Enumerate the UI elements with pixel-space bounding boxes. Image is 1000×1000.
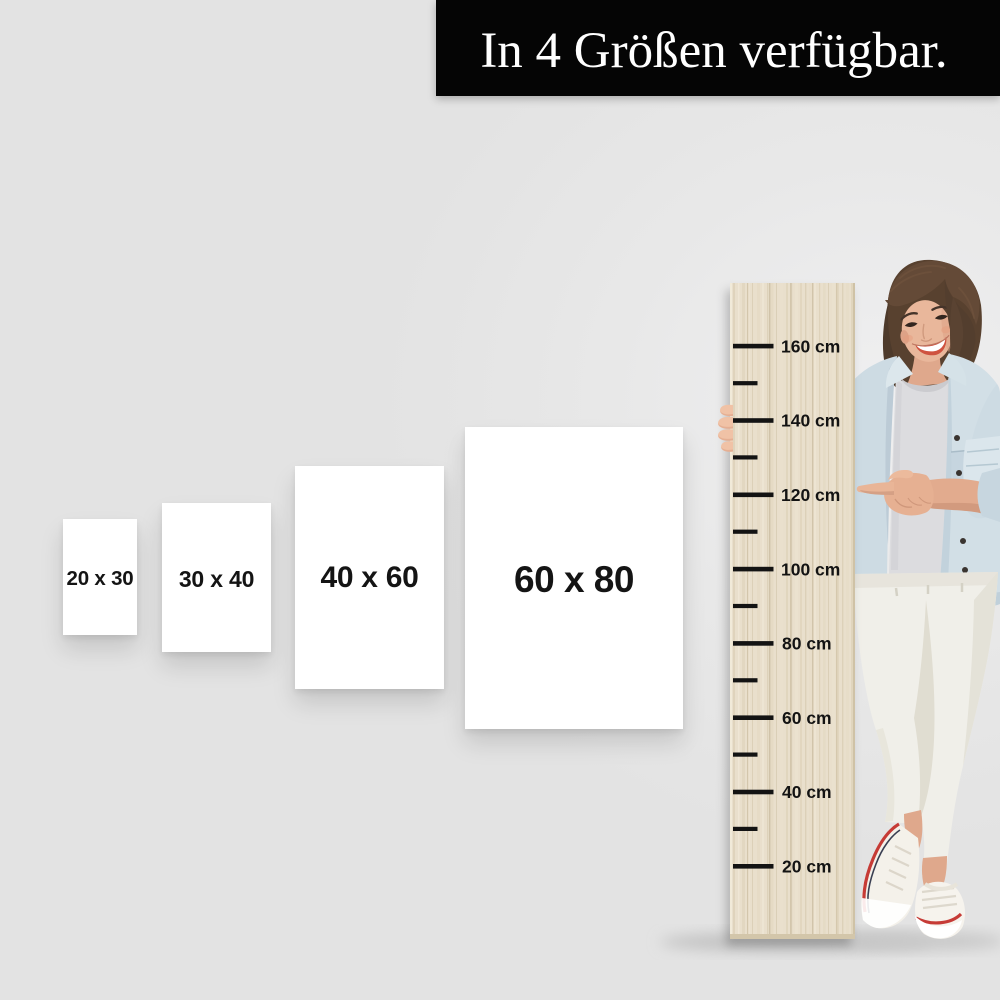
svg-text:160 cm: 160 cm (781, 336, 840, 356)
svg-text:80 cm: 80 cm (782, 634, 832, 654)
svg-text:100 cm: 100 cm (781, 559, 840, 579)
svg-text:120 cm: 120 cm (781, 485, 840, 505)
svg-text:20 cm: 20 cm (782, 857, 832, 877)
svg-text:40 cm: 40 cm (782, 782, 832, 802)
svg-text:60 cm: 60 cm (782, 708, 832, 728)
svg-text:140 cm: 140 cm (781, 411, 840, 431)
